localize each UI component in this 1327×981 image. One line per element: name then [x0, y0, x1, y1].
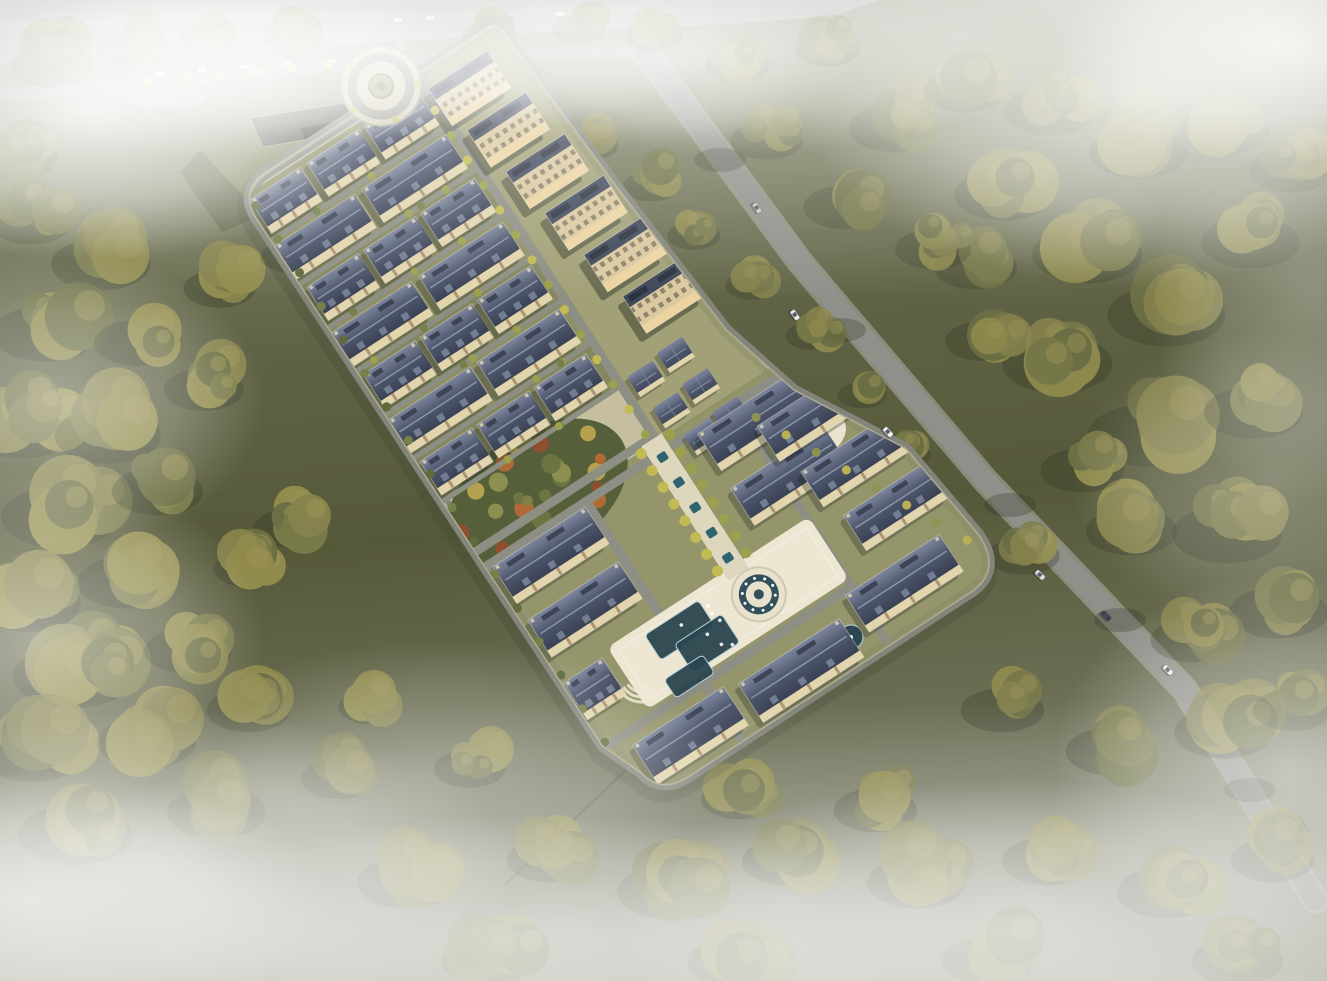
- scene: [0, 0, 1327, 981]
- tree-highlight: [1046, 343, 1068, 365]
- tree-highlight: [247, 547, 268, 568]
- tree-highlight: [1008, 319, 1027, 338]
- tree-shadow-on-road: [984, 493, 1036, 517]
- bottom-haze: [0, 700, 1327, 981]
- tree-highlight: [987, 322, 1004, 339]
- tree-highlight: [1024, 532, 1039, 547]
- tree-highlight: [817, 321, 825, 329]
- tree-highlight: [1010, 685, 1024, 699]
- tree-highlight: [306, 499, 325, 518]
- aerial-rendering-canvas: [0, 0, 1327, 981]
- tree-highlight: [869, 375, 881, 387]
